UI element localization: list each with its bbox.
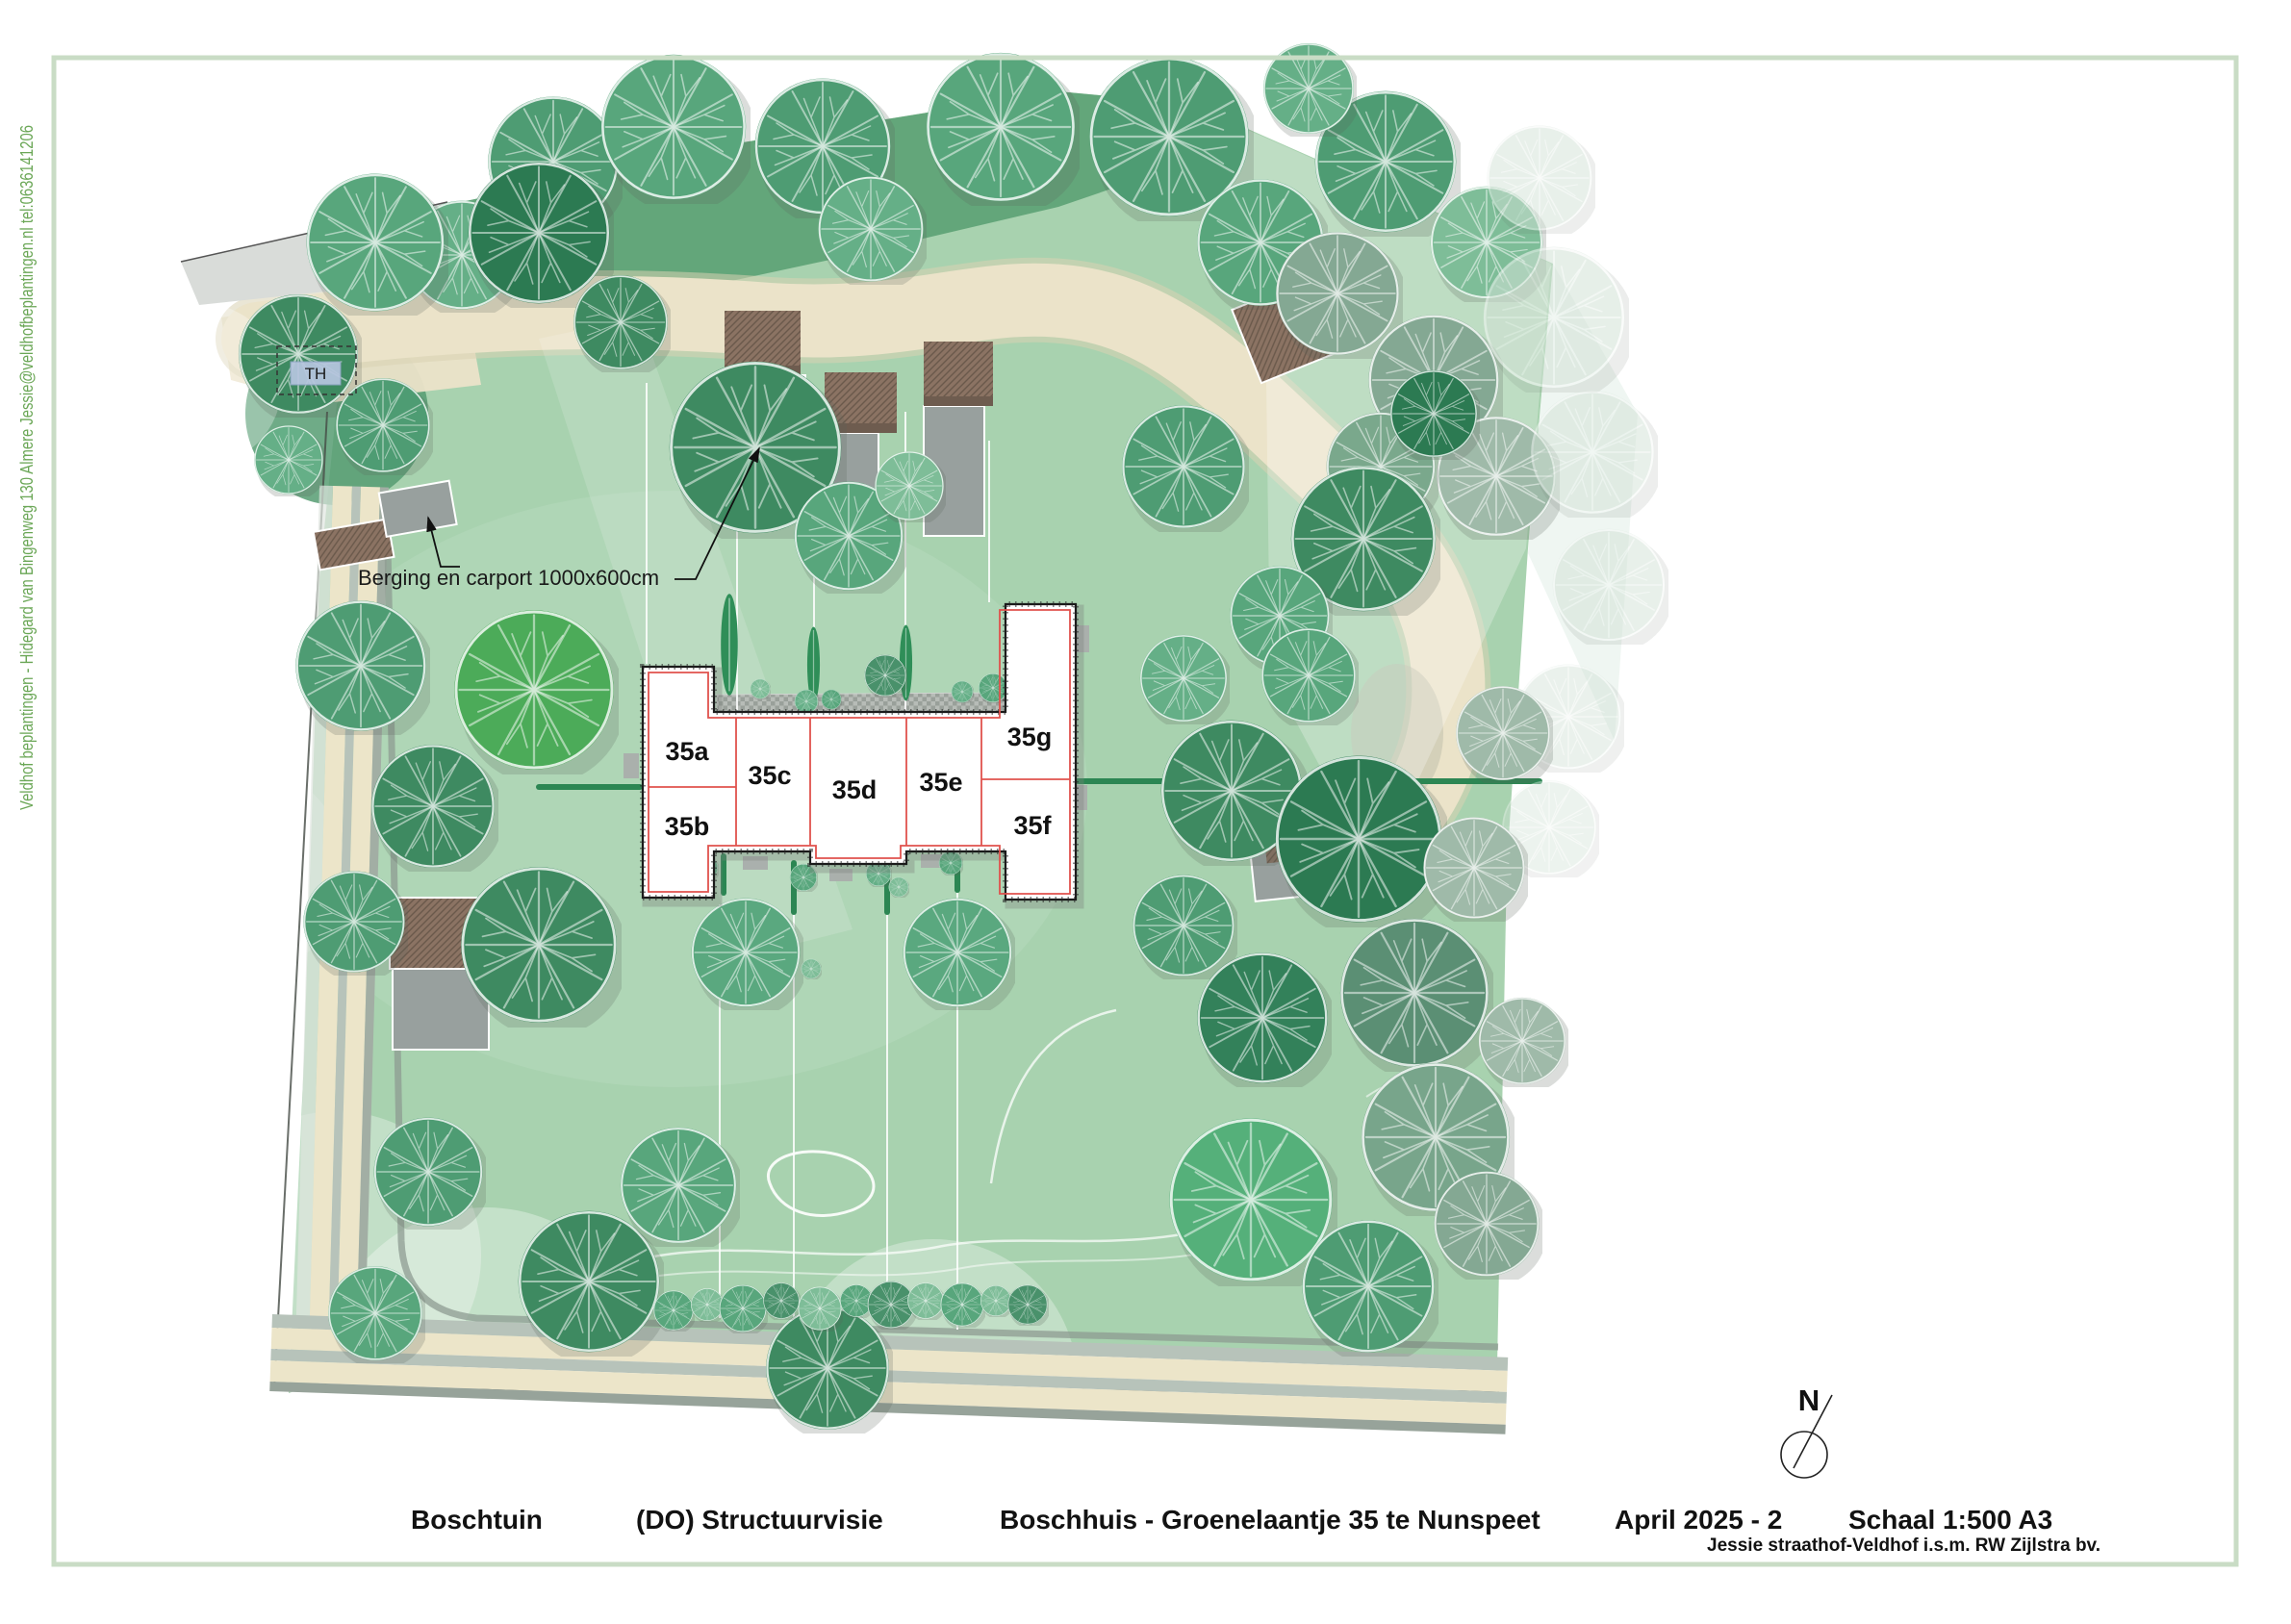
unit-label-35g: 35g [1007,723,1053,751]
unit-label-35b: 35b [665,812,710,841]
th-label: TH [305,365,327,383]
credit-line: Jessie straathof-Veldhof i.s.m. RW Zijls… [1707,1535,2100,1556]
plan-title: Boschhuis - Groenelaantje 35 te Nunspeet [1000,1505,1540,1535]
unit-label-35d: 35d [832,775,878,804]
phase-label: (DO) Structuurvisie [636,1505,883,1535]
plan-date: April 2025 - 2 [1615,1505,1782,1535]
unit-label-35a: 35a [665,737,709,766]
berging-label: Berging en carport 1000x600cm [358,566,659,590]
cypress-icon [721,594,738,696]
title-block: Boschtuin (DO) Structuurvisie Boschhuis … [411,1505,2100,1556]
site-plan: 35a 35b 35c 35d 35e 35f 35g Berging en c… [0,0,2291,1619]
unit-label-35c: 35c [748,761,791,790]
page: { "sidebar": { "contact_line": "Veldhof … [0,0,2291,1619]
unit-label-35e: 35e [919,768,962,797]
unit-label-35f: 35f [1013,811,1052,840]
sidebar-contact-text: Veldhof beplantingen - Hidegard van Bing… [17,125,37,810]
project-name: Boschtuin [411,1505,543,1535]
north-label: N [1798,1383,1820,1417]
plan-scale: Schaal 1:500 A3 [1848,1505,2052,1535]
compass-circle-icon [1781,1432,1827,1478]
north-compass: N [1781,1383,1832,1478]
